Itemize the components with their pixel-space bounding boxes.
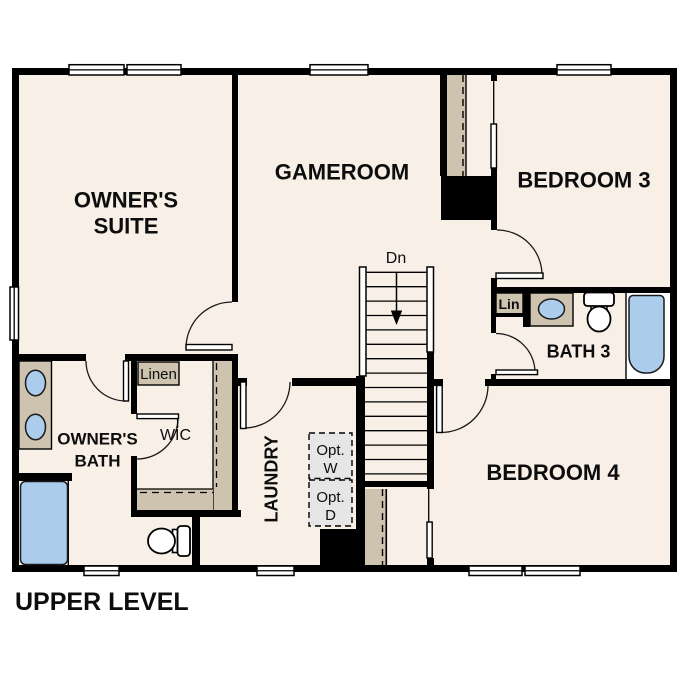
svg-text:W: W — [323, 460, 338, 477]
svg-text:UPPER LEVEL: UPPER LEVEL — [15, 588, 189, 616]
svg-text:SUITE: SUITE — [94, 214, 159, 239]
svg-text:Opt.: Opt. — [316, 442, 344, 459]
svg-text:BEDROOM 4: BEDROOM 4 — [486, 460, 620, 485]
svg-text:BEDROOM 3: BEDROOM 3 — [517, 168, 650, 193]
svg-text:Lin: Lin — [499, 296, 520, 312]
svg-text:Linen: Linen — [140, 366, 177, 383]
svg-text:BATH: BATH — [75, 452, 121, 471]
svg-text:OWNER'S: OWNER'S — [57, 430, 138, 449]
svg-text:GAMEROOM: GAMEROOM — [275, 160, 409, 185]
svg-text:BATH 3: BATH 3 — [547, 342, 611, 362]
svg-text:Dn: Dn — [386, 250, 406, 267]
svg-text:LAUNDRY: LAUNDRY — [262, 435, 282, 522]
svg-text:OWNER'S: OWNER'S — [74, 188, 178, 213]
svg-text:Opt.: Opt. — [316, 489, 344, 506]
svg-text:D: D — [325, 507, 336, 524]
svg-text:WIC: WIC — [160, 427, 191, 444]
